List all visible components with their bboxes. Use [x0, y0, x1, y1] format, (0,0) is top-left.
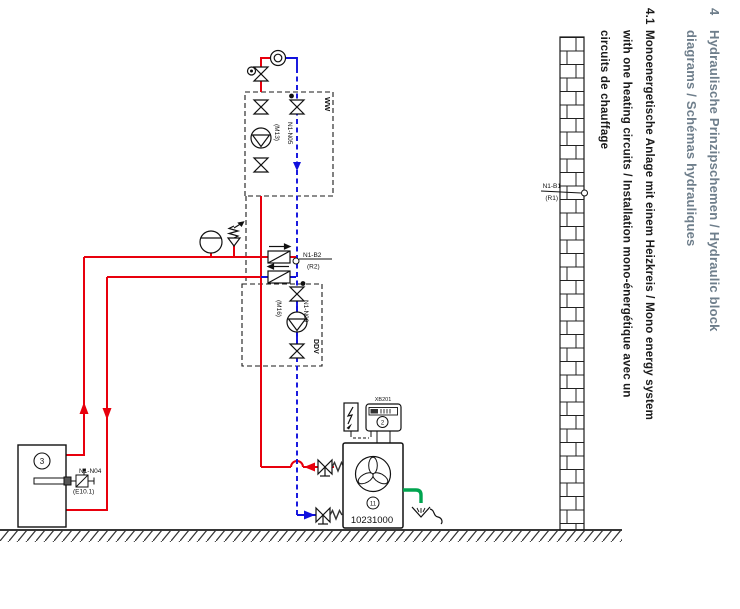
manual-page: 4 Hydraulische Prinzipschemen / Hydrauli…: [0, 0, 740, 609]
controller-terminal-label: XB201: [375, 397, 392, 403]
flow-sensor-code: N1-B2: [303, 252, 322, 259]
heater-element-icon: [64, 477, 71, 485]
heating-pump-alt: (M16): [275, 300, 282, 317]
flow-sensor-alt: (R2): [307, 264, 320, 271]
safety-group: [200, 222, 290, 283]
hp-connections: [316, 460, 344, 524]
heat-pump-ref: 11: [370, 502, 377, 508]
shutoff-valve-icon: [290, 344, 304, 351]
shutoff-valve-icon: [254, 67, 268, 74]
drain-trap-icon: [430, 509, 442, 524]
ground: [0, 530, 622, 542]
shutoff-valve-icon: [254, 158, 268, 165]
dhw-pump-alt: (M13): [273, 124, 280, 141]
outdoor-sensor-code: N1-B1: [543, 183, 562, 190]
hp-electrics: [344, 403, 401, 443]
condensate-drain: [403, 490, 442, 524]
dhw-box-label: WW: [323, 97, 332, 112]
heating-box: [242, 284, 322, 366]
heating-box-label: DDV: [312, 339, 319, 354]
shutoff-valve-icon: [318, 460, 325, 474]
hydraulic-diagram: N1-B1 (R1) WW DDV: [0, 0, 740, 609]
safety-valve-icon: [229, 226, 238, 238]
motor-valve-icon: [290, 100, 304, 107]
motor-valve-icon: [290, 287, 304, 294]
flow-sensor: N1-B2 (R2): [293, 252, 332, 271]
buffer-tank: [18, 445, 94, 527]
shutoff-valve-icon: [316, 508, 323, 522]
outdoor-sensor-alt: (R1): [545, 195, 558, 202]
immersion-heater-alt: (E10.1): [73, 489, 94, 496]
expansion-vessel-icon: [200, 231, 222, 253]
flex-hose-icon: [330, 511, 342, 520]
building-wall: [560, 37, 584, 530]
heating-pump-code: N1-N09: [302, 300, 309, 323]
drain-pipe: [403, 490, 421, 503]
heat-pump-model-number: 10231000: [351, 515, 393, 526]
dhw-pump-code: N1-N05: [286, 122, 293, 145]
immersion-heater-code: N1-N04: [79, 468, 102, 475]
tank-ref: 3: [40, 457, 45, 466]
supply-flow-arrows: [80, 402, 316, 472]
dhw-circuit: [248, 51, 305, 173]
shutoff-valve-icon: [254, 100, 268, 107]
